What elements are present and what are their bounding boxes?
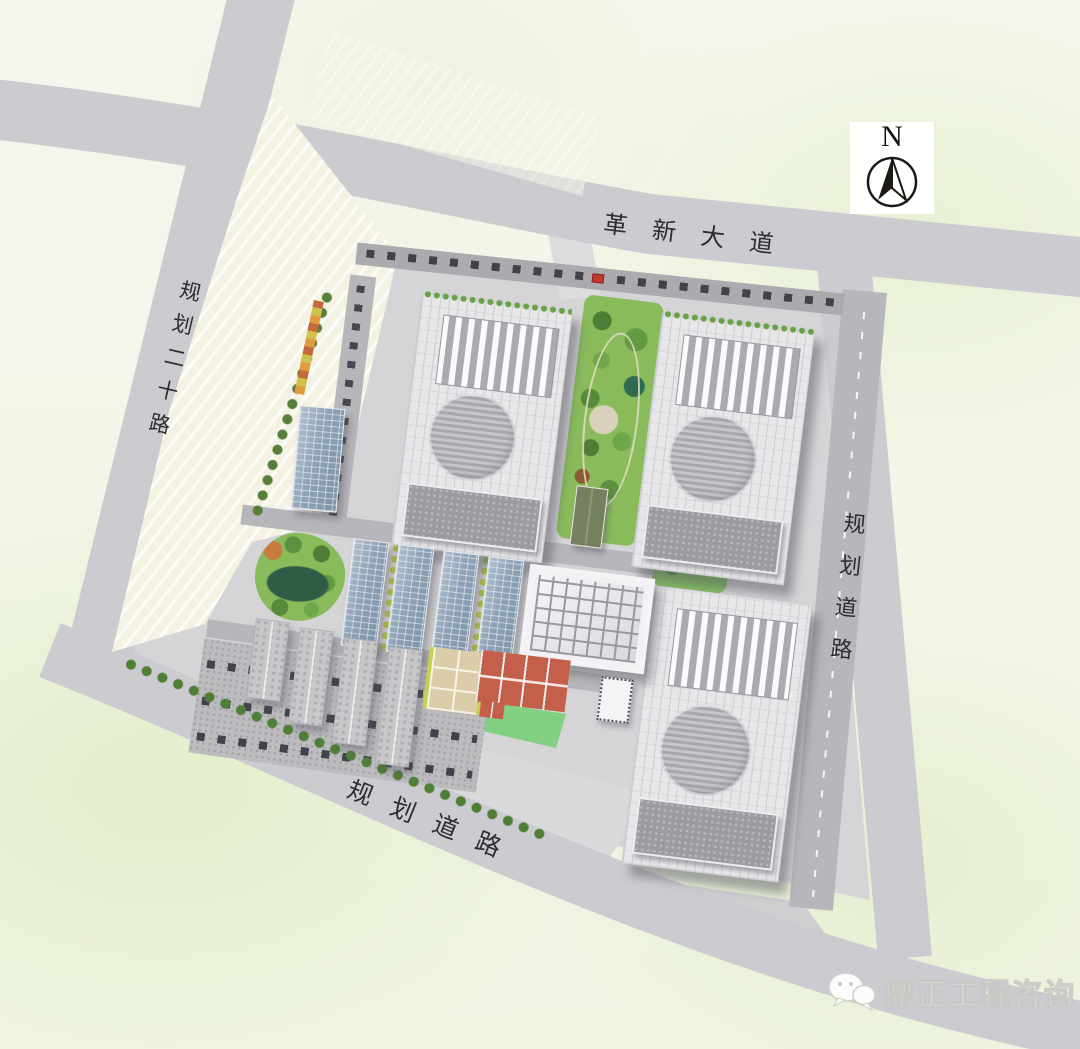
north-arrow-icon [863,152,921,210]
north-compass: N [850,122,934,214]
badminton-courts [426,647,483,715]
watermark-text: 鼎正工程咨询 [884,970,1076,1014]
wechat-icon [826,971,876,1013]
roof-dome [663,410,761,508]
warehouse-1 [391,293,573,564]
red-car [592,273,605,283]
watermark: 鼎正工程咨询 [826,970,1076,1014]
waffle-skylight-roof [530,575,644,663]
warehouse-2 [631,313,815,586]
loading-annex [641,504,784,575]
solar-array-building [291,405,346,513]
skylight-band [668,609,798,701]
small-courts [479,701,505,720]
loading-annex [401,482,543,553]
site-plan-stage: 革新大道 规划二十路 规划道路 规划道路 N 鼎正工程咨询 [0,0,1080,1049]
skylight-band [435,314,560,398]
roof-dome [655,700,756,801]
park-loop-path [574,330,649,511]
substation [596,676,633,724]
loading-annex [632,797,779,871]
skylight-band [675,334,801,419]
north-label: N [850,122,934,152]
roof-dome [423,389,520,486]
